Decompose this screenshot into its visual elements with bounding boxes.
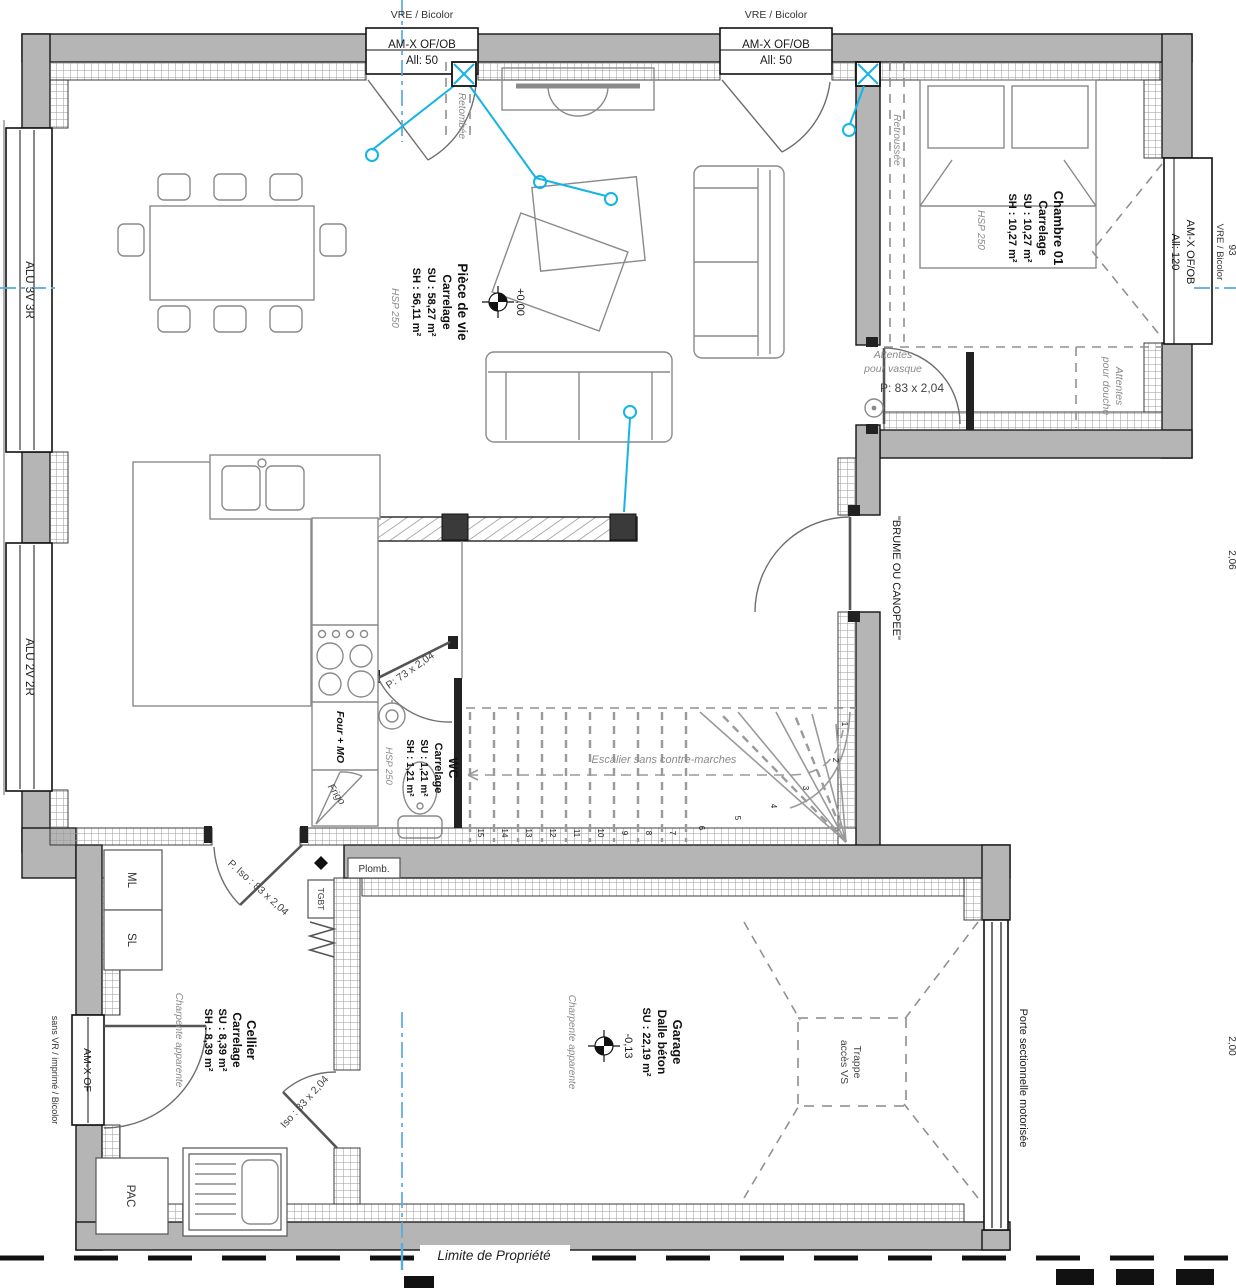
svg-text:-0,13: -0,13 — [622, 1033, 634, 1058]
beam-post — [442, 514, 468, 540]
pac-label: PAC — [124, 1185, 136, 1208]
staircase — [468, 712, 850, 842]
svg-text:SH : 10,27 m²: SH : 10,27 m² — [1006, 193, 1018, 262]
svg-text:2,06: 2,06 — [1226, 550, 1236, 570]
cellier-garage-door-size: Iso : 83 x 2,04 — [278, 1073, 331, 1130]
dining-table — [150, 206, 314, 300]
window-west-large-label: ALU 3V 3R — [23, 261, 35, 319]
svg-text:AM-X OF: AM-X OF — [81, 1048, 93, 1092]
douche-wait-label: Attentes pour douche — [1100, 356, 1125, 416]
svg-text:HSP 250: HSP 250 — [975, 210, 986, 250]
level-marker-garage — [588, 1030, 620, 1062]
svg-text:"BRUME OU CANOPEE": "BRUME OU CANOPEE" — [890, 516, 902, 640]
window-head-label: VRE / Bicolor — [745, 9, 808, 21]
kitchen — [133, 455, 405, 826]
svg-text:Garage: Garage — [670, 1020, 685, 1065]
svg-text:SH : 1,21 m²: SH : 1,21 m² — [404, 739, 415, 797]
wc-door — [370, 541, 462, 828]
room-label-piece-de-vie: Pièce de vie Carrelage SU : 58,27 m² SH … — [410, 263, 470, 341]
window-sill: All: 50 — [406, 55, 438, 67]
floor-plan-page: VRE / Bicolor VRE / Bicolor AM-X OF/OB A… — [0, 0, 1236, 1288]
svg-text:Carrelage: Carrelage — [432, 743, 444, 794]
light-point — [605, 193, 617, 205]
svg-text:AM-X OF/OB: AM-X OF/OB — [1184, 220, 1196, 285]
svg-text:Carrelage: Carrelage — [440, 274, 454, 330]
vasque-wait-label: Attentes — [873, 349, 913, 361]
level-marker-main — [482, 286, 514, 318]
svg-text:SU : 8,39 m²: SU : 8,39 m² — [216, 1009, 228, 1072]
beam-post — [610, 514, 636, 540]
dimension-text: 2,06 — [1226, 550, 1236, 570]
garage-door-label: Porte sectionnelle motorisée — [1017, 1009, 1029, 1148]
room-hsp-piece-de-vie: HSP 250 — [389, 288, 400, 328]
appliance-column — [312, 518, 378, 826]
svg-text:ALU 3V 3R: ALU 3V 3R — [23, 261, 35, 319]
heat-pump-unit — [183, 1148, 287, 1236]
light-point — [624, 406, 636, 418]
svg-text:sans VR / imprimé / Bicolor: sans VR / imprimé / Bicolor — [50, 1016, 60, 1125]
room-note-cellier: Charpente apparente — [173, 993, 184, 1088]
suite-door-size: P: 83 x 2,04 — [880, 381, 944, 395]
svg-text:3: 3 — [801, 786, 810, 791]
svg-text:7: 7 — [668, 831, 677, 836]
svg-text:+0,00: +0,00 — [514, 288, 526, 316]
garage-sectional-door — [984, 920, 1008, 1230]
pillow — [1012, 86, 1088, 148]
retroussee-label: Retroussée — [891, 114, 902, 166]
svg-text:5: 5 — [733, 816, 742, 821]
svg-text:13: 13 — [524, 829, 533, 838]
washer-label: ML — [125, 872, 137, 889]
svg-text:HSP 250: HSP 250 — [383, 747, 394, 785]
svg-text:9: 9 — [620, 831, 629, 836]
svg-text:1: 1 — [840, 722, 849, 727]
room-label-chambre: Chambre 01 Carrelage SU : 10,27 m² SH : … — [1006, 191, 1066, 265]
svg-text:Attentes: Attentes — [1113, 366, 1125, 406]
svg-text:11: 11 — [572, 829, 581, 838]
svg-text:Retombée: Retombée — [456, 93, 467, 140]
svg-text:Dalle béton: Dalle béton — [655, 1010, 669, 1075]
svg-text:Retroussée: Retroussée — [891, 114, 902, 166]
svg-text:TGBT: TGBT — [316, 888, 326, 911]
property-line-label: Limite de Propriété — [437, 1248, 550, 1263]
window-east-head: VRE / Bicolor — [1214, 224, 1225, 281]
svg-text:6: 6 — [697, 826, 706, 831]
dimension-text: 93 — [1226, 244, 1236, 256]
window-cellier-label: AM-X OF — [81, 1048, 93, 1092]
svg-text:ALU 2V 2R: ALU 2V 2R — [23, 638, 35, 696]
sofa-horizontal — [486, 352, 672, 442]
corner-washbasin — [379, 700, 405, 729]
svg-text:PAC: PAC — [124, 1185, 136, 1208]
svg-text:Porte sectionnelle motorisée: Porte sectionnelle motorisée — [1017, 1009, 1029, 1148]
plumbing-label: Plomb. — [358, 864, 389, 875]
svg-text:15: 15 — [476, 829, 485, 838]
tgbt-diamond — [314, 856, 328, 870]
svg-text:Carrelage: Carrelage — [1036, 200, 1050, 256]
pillow — [928, 86, 1004, 148]
svg-text:Cellier: Cellier — [244, 1020, 259, 1060]
svg-text:Charpente apparente: Charpente apparente — [173, 993, 184, 1088]
light-point — [366, 149, 378, 161]
dining-set — [118, 174, 346, 332]
svg-text:Trappe: Trappe — [851, 1046, 863, 1079]
dimension-text: 2,00 — [1226, 1036, 1236, 1056]
room-label-garage: Garage Dalle béton SU : 22,19 m² — [640, 1007, 685, 1076]
svg-text:2,00: 2,00 — [1226, 1036, 1236, 1056]
window-head-label: VRE / Bicolor — [391, 9, 454, 21]
light-point — [843, 124, 855, 136]
svg-text:2: 2 — [831, 758, 840, 763]
svg-text:12: 12 — [548, 829, 557, 838]
tgbt-label: TGBT — [316, 888, 326, 911]
svg-text:Carrelage: Carrelage — [230, 1012, 244, 1068]
level-main-label: +0,00 — [514, 288, 526, 316]
entry-door — [755, 505, 860, 622]
svg-text:ML: ML — [125, 872, 137, 889]
svg-text:All: 120: All: 120 — [1169, 234, 1181, 271]
room-label-wc: WC Carrelage SU : 1,21 m² SH : 1,21 m² — [404, 739, 460, 797]
stair-guard-wall — [377, 514, 637, 541]
svg-text:Charpente apparente: Charpente apparente — [566, 995, 577, 1090]
svg-text:SL: SL — [125, 933, 137, 948]
oven-label: Four + MO — [334, 711, 346, 763]
retombee-label: Retombée — [456, 93, 467, 140]
svg-text:Pièce de vie: Pièce de vie — [455, 263, 470, 341]
construction-dashed-lines — [446, 62, 1162, 708]
window-sill: All: 50 — [760, 55, 792, 67]
svg-text:accès VS: accès VS — [838, 1040, 850, 1084]
svg-text:Four + MO: Four + MO — [334, 711, 346, 763]
floor-plan-drawing: VRE / Bicolor VRE / Bicolor AM-X OF/OB A… — [0, 0, 1236, 1288]
svg-text:HSP 250: HSP 250 — [389, 288, 400, 328]
svg-text:VRE / Bicolor: VRE / Bicolor — [1214, 224, 1225, 281]
svg-text:WC: WC — [446, 758, 460, 779]
svg-text:4: 4 — [769, 804, 778, 809]
dryer-label: SL — [125, 933, 137, 948]
svg-text:Chambre 01: Chambre 01 — [1051, 191, 1066, 265]
stair-numbers: 15 14 13 12 11 10 9 8 7 6 5 4 3 2 1 — [476, 722, 849, 838]
svg-text:SU : 10,27 m²: SU : 10,27 m² — [1021, 193, 1033, 262]
svg-text:pour douche: pour douche — [1100, 356, 1112, 416]
level-garage-label: -0,13 — [622, 1033, 634, 1058]
svg-text:SU : 22,19 m²: SU : 22,19 m² — [640, 1007, 652, 1076]
svg-text:SU : 1,21 m²: SU : 1,21 m² — [418, 739, 429, 797]
svg-text:SU : 58,27 m²: SU : 58,27 m² — [425, 267, 437, 336]
svg-text:SH : 56,11 m²: SH : 56,11 m² — [410, 268, 422, 337]
vasque-wait-label: pour vasque — [863, 363, 922, 375]
room-hsp-chambre: HSP 250 — [975, 210, 986, 250]
bath-partition — [966, 352, 974, 430]
svg-text:93: 93 — [1226, 244, 1236, 256]
window-tag: AM-X OF/OB — [388, 39, 456, 51]
svg-text:8: 8 — [644, 831, 653, 836]
window-tag: AM-X OF/OB — [742, 39, 810, 51]
meter-zigzag — [310, 922, 334, 957]
trap-label: Trappe accès VS — [838, 1040, 863, 1084]
entry-door-label: "BRUME OU CANOPEE" — [890, 516, 902, 640]
svg-text:10: 10 — [596, 829, 605, 838]
room-label-cellier: Cellier Carrelage SU : 8,39 m² SH : 8,39… — [202, 1009, 259, 1072]
svg-text:Iso : 83 x 2,04: Iso : 83 x 2,04 — [278, 1073, 331, 1130]
walking-line — [468, 730, 843, 775]
room-note-garage: Charpente apparente — [566, 995, 577, 1090]
svg-text:SH : 8,39 m²: SH : 8,39 m² — [202, 1009, 214, 1072]
window-cellier-note: sans VR / imprimé / Bicolor — [50, 1016, 60, 1125]
window-west-small-label: ALU 2V 2R — [23, 638, 35, 696]
stairs-label: Escalier sans contre-marches — [592, 754, 737, 766]
room-hsp-wc: HSP 250 — [383, 747, 394, 785]
svg-text:14: 14 — [500, 829, 509, 838]
sofa-vertical — [694, 166, 784, 358]
